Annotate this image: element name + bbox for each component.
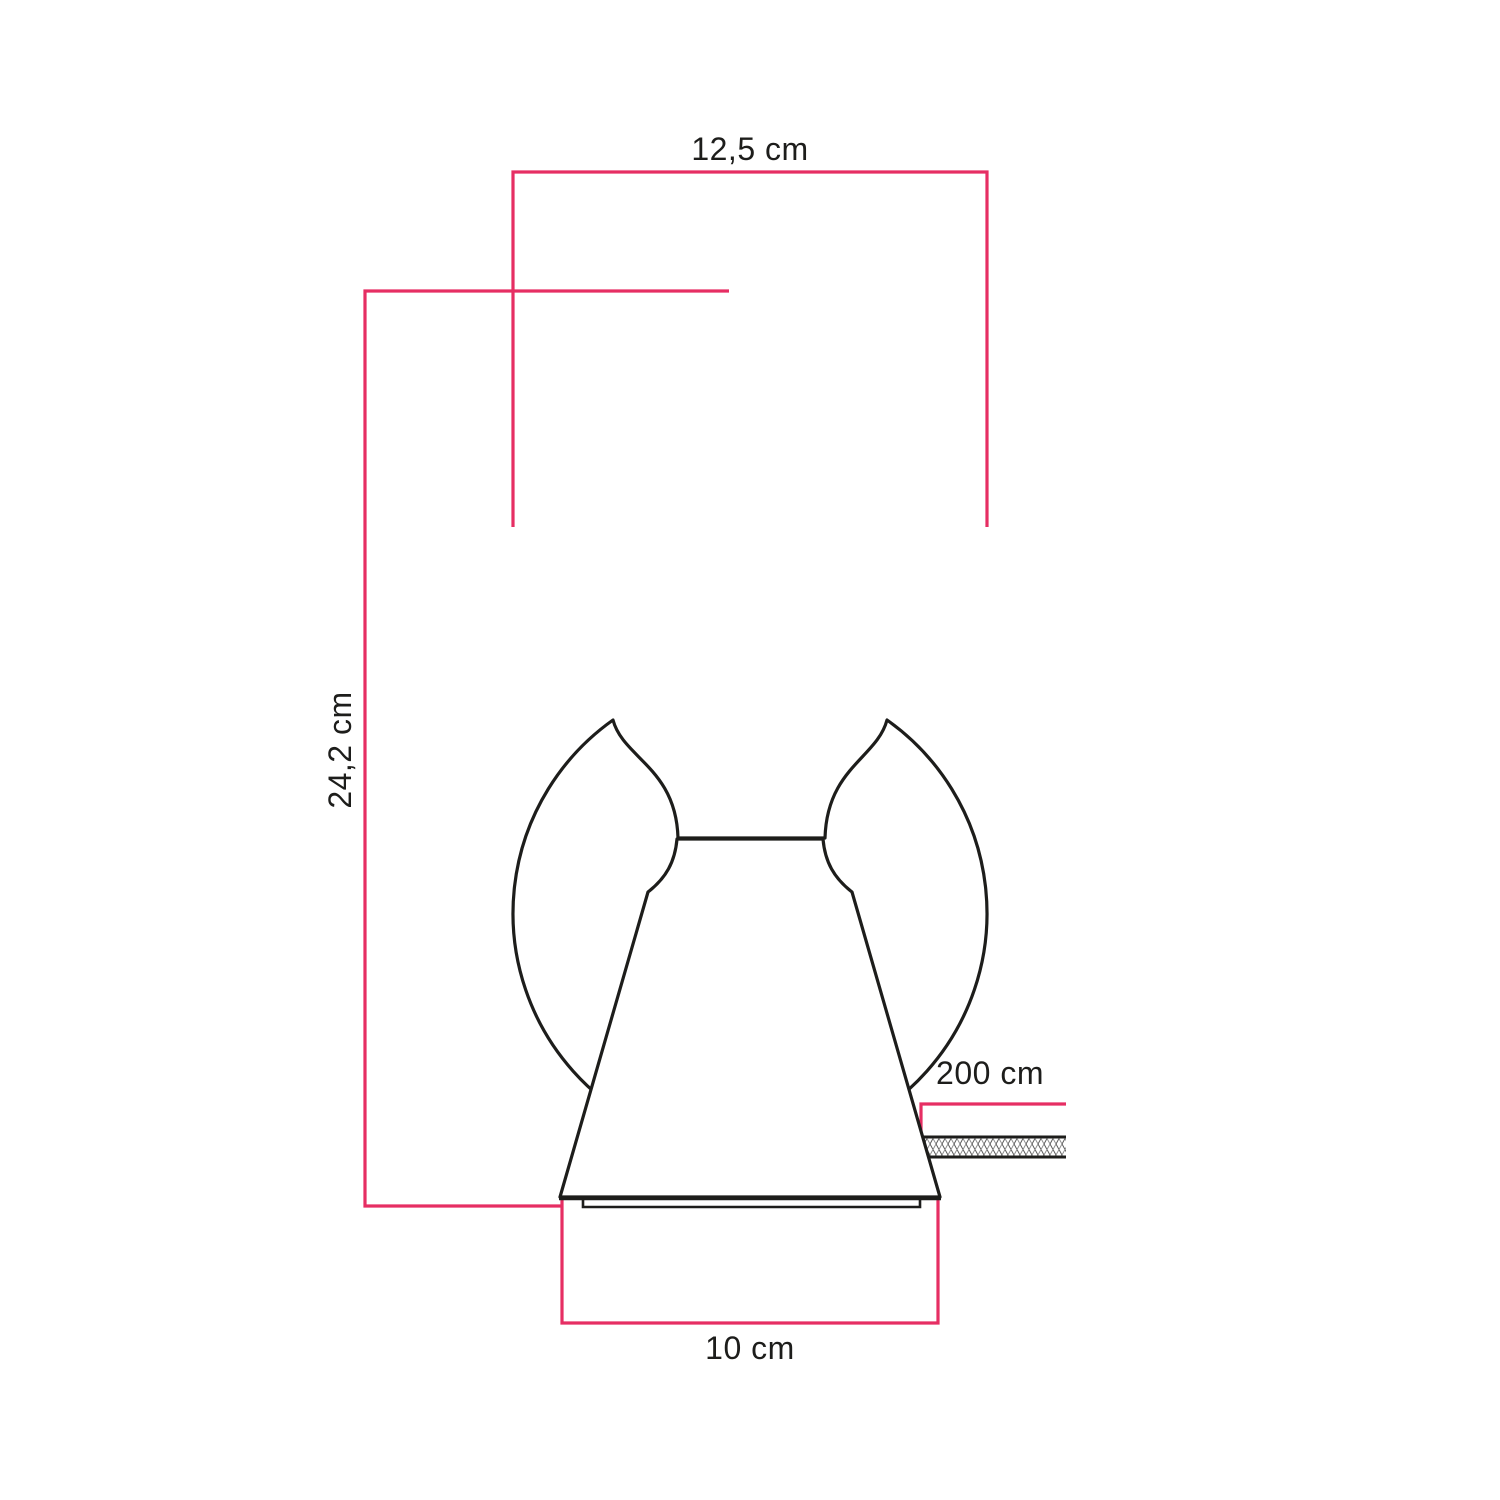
dimension-label-total-height: 24,2 cm	[322, 550, 358, 950]
lamp-technical-drawing	[0, 0, 1500, 1500]
fabric-cable	[914, 1137, 1066, 1157]
dimension-drawing-canvas: 12,5 cm 24,2 cm 200 cm 10 cm	[0, 0, 1500, 1500]
cable-hatch-fill	[916, 1137, 1066, 1157]
dimension-label-cable-length: 200 cm	[790, 1055, 1190, 1091]
dimension-line-cable-length	[921, 1104, 1066, 1137]
dimension-label-base-diameter: 10 cm	[550, 1330, 950, 1366]
dimension-label-bulb-diameter: 12,5 cm	[550, 131, 950, 167]
dimension-line-bulb-diameter	[513, 172, 987, 527]
dimension-line-base-diameter	[562, 1199, 938, 1323]
